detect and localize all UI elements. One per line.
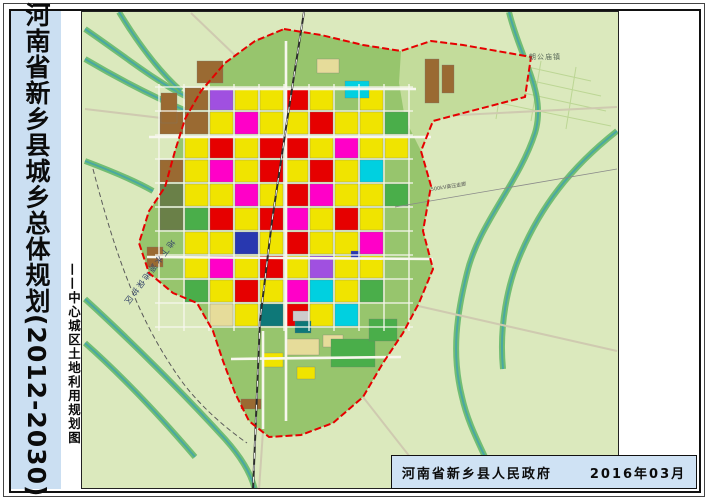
- parcel: [260, 304, 283, 326]
- parcel: [285, 232, 308, 254]
- parcel: [235, 208, 258, 230]
- parcel: [360, 280, 383, 302]
- parcel: [425, 59, 439, 103]
- parcel: [235, 184, 258, 206]
- parcel: [260, 112, 283, 134]
- parcel: [360, 112, 383, 134]
- parcel: [310, 208, 333, 230]
- parcel: [235, 280, 258, 302]
- parcel: [160, 208, 183, 230]
- parcel: [185, 184, 208, 206]
- map-date: 2016年03月: [590, 463, 686, 482]
- parcel: [161, 93, 177, 123]
- parcel: [285, 208, 308, 230]
- parcel: [285, 160, 308, 182]
- parcel: [185, 256, 208, 278]
- parcel: [310, 112, 333, 134]
- parcel: [310, 184, 333, 206]
- parcel: [241, 399, 261, 409]
- parcel: [360, 208, 383, 230]
- parcel: [385, 184, 408, 206]
- parcel: [260, 184, 283, 206]
- publisher: 河南省新乡县人民政府: [402, 463, 552, 482]
- parcel: [235, 88, 258, 110]
- parcel: [369, 319, 397, 341]
- parcel: [317, 59, 339, 73]
- parcel: [331, 339, 375, 367]
- parcel: [310, 160, 333, 182]
- parcel: [160, 184, 183, 206]
- parcel: [360, 184, 383, 206]
- parcel: [210, 304, 233, 326]
- parcel: [287, 339, 319, 355]
- map-canvas: 朗公庙镇地下水源地保护区500kV高压走廊: [82, 12, 619, 489]
- parcel: [235, 136, 258, 158]
- parcel: [210, 160, 233, 182]
- parcel: [235, 160, 258, 182]
- parcel: [210, 280, 233, 302]
- parcel: [185, 112, 208, 134]
- subtitle-strip: ——中心城区土地利用规划图: [61, 11, 81, 489]
- parcel: [310, 304, 333, 326]
- parcel: [210, 112, 233, 134]
- parcel: [260, 256, 283, 278]
- main-title: 河南省新乡县城乡总体规划(2012-2030): [11, 2, 61, 497]
- parcel: [385, 136, 408, 158]
- parcel: [360, 160, 383, 182]
- parcel: [335, 112, 358, 134]
- parcel: [293, 311, 309, 321]
- map-label: 朗公庙镇: [529, 52, 561, 61]
- parcel: [297, 367, 315, 379]
- parcel: [210, 184, 233, 206]
- parcel: [210, 208, 233, 230]
- parcel: [335, 184, 358, 206]
- parcel: [210, 232, 233, 254]
- parcel: [335, 208, 358, 230]
- parcel: [260, 232, 283, 254]
- parcel: [310, 136, 333, 158]
- parcel: [442, 65, 454, 93]
- right-panel: N 5000500100015002000m 图 例 二类居住用地行政办公用地文…: [619, 11, 697, 489]
- parcel: [285, 184, 308, 206]
- parcel: [235, 256, 258, 278]
- map-area[interactable]: 朗公庙镇地下水源地保护区500kV高压走廊: [81, 11, 619, 489]
- parcel: [310, 280, 333, 302]
- parcel: [310, 88, 333, 110]
- parcel: [260, 88, 283, 110]
- parcel: [335, 136, 358, 158]
- parcel: [360, 136, 383, 158]
- parcel: [385, 112, 408, 134]
- bottom-title-block: 河南省新乡县人民政府 2016年03月: [391, 455, 697, 489]
- parcel: [185, 136, 208, 158]
- parcel: [335, 304, 358, 326]
- parcel: [185, 160, 208, 182]
- parcel: [235, 304, 258, 326]
- plan-sheet: 河南省新乡县城乡总体规划(2012-2030) ——中心城区土地利用规划图 朗公…: [0, 0, 708, 500]
- parcel: [360, 232, 383, 254]
- parcel: [210, 136, 233, 158]
- parcel: [285, 136, 308, 158]
- parcel: [335, 232, 358, 254]
- parcel: [235, 112, 258, 134]
- parcel: [335, 280, 358, 302]
- main-title-strip: 河南省新乡县城乡总体规划(2012-2030): [11, 11, 62, 489]
- parcel: [185, 208, 208, 230]
- parcel: [285, 280, 308, 302]
- parcel: [197, 61, 223, 83]
- parcel: [263, 353, 283, 367]
- parcel: [260, 136, 283, 158]
- parcel: [185, 280, 208, 302]
- parcel: [335, 160, 358, 182]
- parcel: [185, 232, 208, 254]
- parcel: [235, 232, 258, 254]
- parcel: [210, 88, 233, 110]
- parcel: [310, 232, 333, 254]
- parcel: [210, 256, 233, 278]
